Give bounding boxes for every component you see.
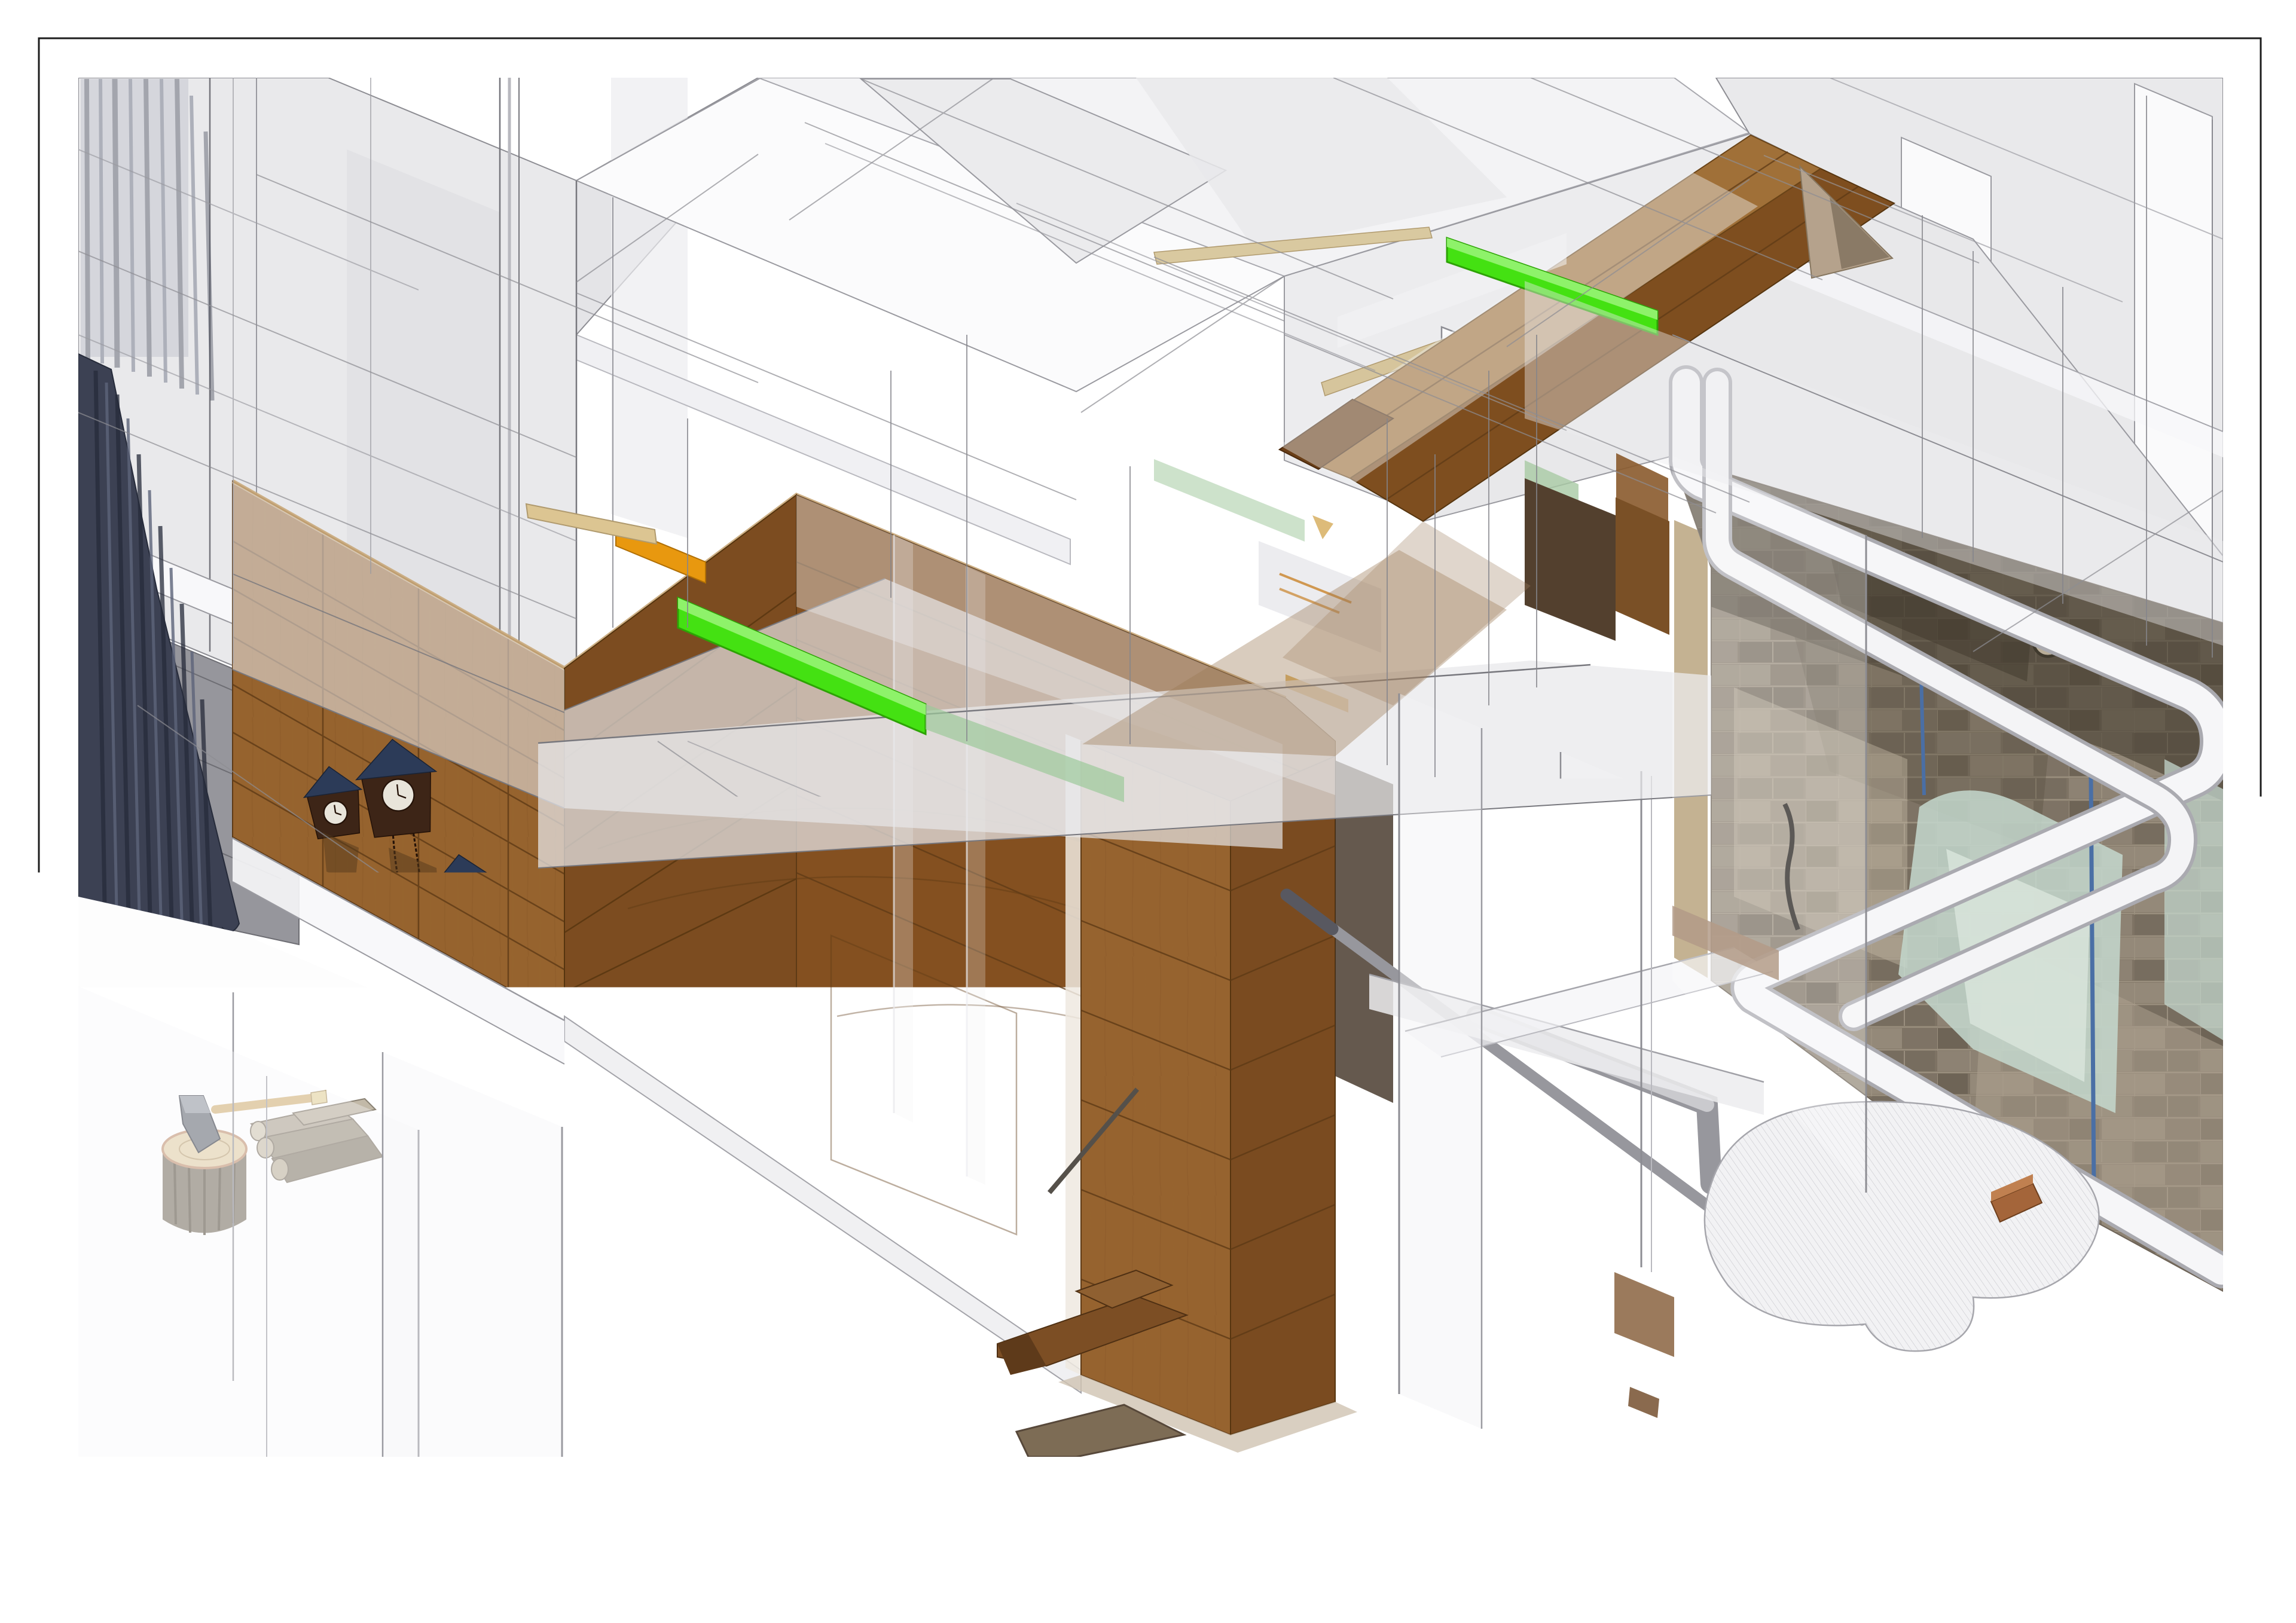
svg-text:INSTALLATION LOCATION: HACKNEY: INSTALLATION LOCATION: HACKNEY, LONDON — [1917, 1553, 2171, 1569]
svg-text:©JAMIE SNEDDON - FILM PRODUCTI: ©JAMIE SNEDDON - FILM PRODUCTION DESIGN … — [72, 1529, 614, 1546]
svg-text:SCALE:: SCALE: — [1917, 1505, 1957, 1521]
svg-text:CONSTRUCT LOCATION: BALSDEAN F: CONSTRUCT LOCATION: BALSDEAN FARM, BRIGH… — [1917, 1535, 2215, 1551]
svg-text:DATE: SEPT 2024: DATE: SEPT 2024 — [1550, 1506, 1643, 1522]
svg-text:DRAWING TITLE: GEPPETTOS WORKS: DRAWING TITLE: GEPPETTOS WORKSHOP - CORR… — [1550, 1536, 1850, 1552]
svg-text:PINOCCHIO UNSTRUNG - FEATURE: PINOCCHIO UNSTRUNG - FEATURE — [955, 1520, 1346, 1550]
svg-text:DRAWN BY: JAMIE SNEDDON: DRAWN BY: JAMIE SNEDDON — [1550, 1521, 1709, 1538]
svg-text:REVISION:: REVISION: — [1917, 1520, 1973, 1536]
svg-text:DRAWING No:: DRAWING No: — [1550, 1552, 1624, 1568]
